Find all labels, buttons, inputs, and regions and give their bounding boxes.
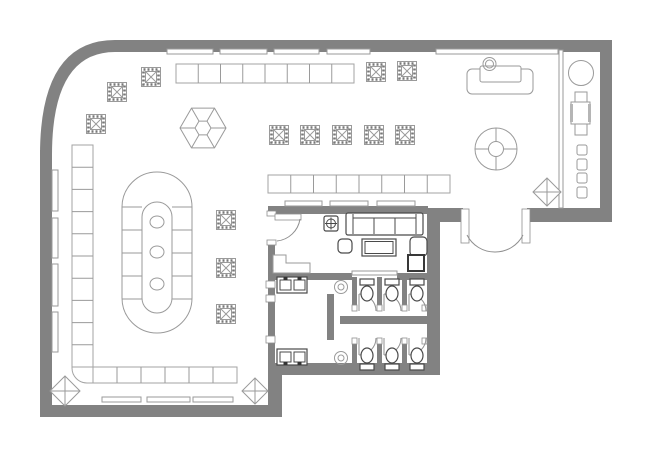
toilet-tank[interactable]: [360, 364, 374, 370]
lounger-foot[interactable]: [575, 124, 587, 135]
wall-shelf[interactable]: [285, 201, 322, 206]
side-chair[interactable]: [338, 239, 352, 253]
hexagon-center: [195, 121, 211, 135]
lounge-counter[interactable]: [273, 255, 310, 273]
toilet-tank[interactable]: [385, 279, 399, 285]
wall-shelf[interactable]: [193, 397, 233, 402]
wall-corner-curve: [40, 40, 115, 155]
toilet-tank[interactable]: [410, 279, 424, 285]
stall-door-jamb: [377, 338, 382, 344]
toilet-bowl: [361, 286, 373, 301]
toilet-bowl: [361, 348, 373, 363]
wall-shelf[interactable]: [52, 264, 58, 306]
faucet: [284, 277, 288, 280]
stall-door-jamb: [352, 305, 357, 311]
fitting-table[interactable]: [569, 61, 594, 86]
floor-drain: [335, 281, 348, 294]
fitting-stool[interactable]: [577, 145, 587, 155]
stall-door-jamb: [352, 338, 357, 344]
wall-right: [600, 40, 612, 222]
wall-left: [40, 150, 52, 417]
wall-privacy: [340, 316, 428, 324]
entry-door-leaf[interactable]: [461, 209, 469, 243]
floor-drain-inner: [338, 355, 344, 361]
toilet-bowl: [411, 348, 423, 363]
wall-suite-right: [427, 208, 440, 375]
wall-notch: [266, 336, 275, 343]
wall-shelf[interactable]: [330, 201, 368, 206]
lounger-armrest: [588, 104, 591, 122]
sofa[interactable]: [346, 213, 423, 235]
wall-shelf[interactable]: [274, 49, 319, 54]
wall-shelf[interactable]: [377, 201, 415, 206]
armchair[interactable]: [410, 237, 427, 256]
lounge-door-leaf[interactable]: [275, 214, 301, 220]
toilet-bowl: [386, 348, 398, 363]
toilet-bowl: [386, 286, 398, 301]
reception-desk-notch: [480, 66, 521, 82]
wall-privacy-stub: [327, 294, 334, 340]
wall-shelf[interactable]: [436, 49, 558, 54]
lounge-door-arc: [277, 219, 300, 241]
stall-door-jamb: [402, 338, 407, 344]
entry-door-arc: [467, 235, 495, 252]
wall-store-bottom: [40, 405, 282, 417]
side-table[interactable]: [408, 255, 424, 271]
entry-door-arc: [495, 235, 523, 252]
sink-counter[interactable]: [277, 277, 307, 293]
stall-door-jamb: [377, 305, 382, 311]
toilet-bowl: [411, 286, 423, 301]
entry-door-leaf[interactable]: [522, 209, 530, 243]
lounger-head[interactable]: [575, 92, 587, 102]
floor-drain-inner: [338, 284, 344, 290]
lounger-armrest: [570, 104, 573, 122]
wall-shelf[interactable]: [167, 49, 213, 54]
wall-shelf[interactable]: [220, 49, 267, 54]
door-jamb: [267, 240, 276, 245]
wall-shelf[interactable]: [52, 170, 58, 211]
restroom-opening-threshold: [352, 271, 397, 275]
floor-plan-canvas: [0, 0, 650, 459]
fitting-room-wall: [559, 50, 563, 208]
faucet: [298, 277, 302, 280]
stall-door-jamb: [402, 305, 407, 311]
counter-corner[interactable]: [72, 367, 93, 383]
wall-shelf[interactable]: [327, 49, 370, 54]
fitting-stool[interactable]: [577, 187, 587, 198]
wall-notch: [266, 295, 275, 302]
floor-plan: [0, 0, 650, 459]
wall-entry-right: [527, 208, 612, 222]
wall-shelf[interactable]: [102, 397, 141, 402]
fitting-stool[interactable]: [577, 173, 587, 183]
faucet: [284, 362, 288, 365]
wall-shelf[interactable]: [52, 218, 58, 258]
toilet-tank[interactable]: [360, 279, 374, 285]
wall-shelf[interactable]: [147, 397, 190, 402]
sink-counter[interactable]: [277, 349, 307, 365]
floor-drain: [335, 352, 348, 365]
faucet: [298, 362, 302, 365]
lounger-seat[interactable]: [571, 102, 590, 124]
fitting-stool[interactable]: [577, 159, 587, 170]
toilet-tank[interactable]: [385, 364, 399, 370]
toilet-tank[interactable]: [410, 364, 424, 370]
wall-shelf[interactable]: [52, 312, 58, 352]
wall-notch: [266, 281, 275, 288]
